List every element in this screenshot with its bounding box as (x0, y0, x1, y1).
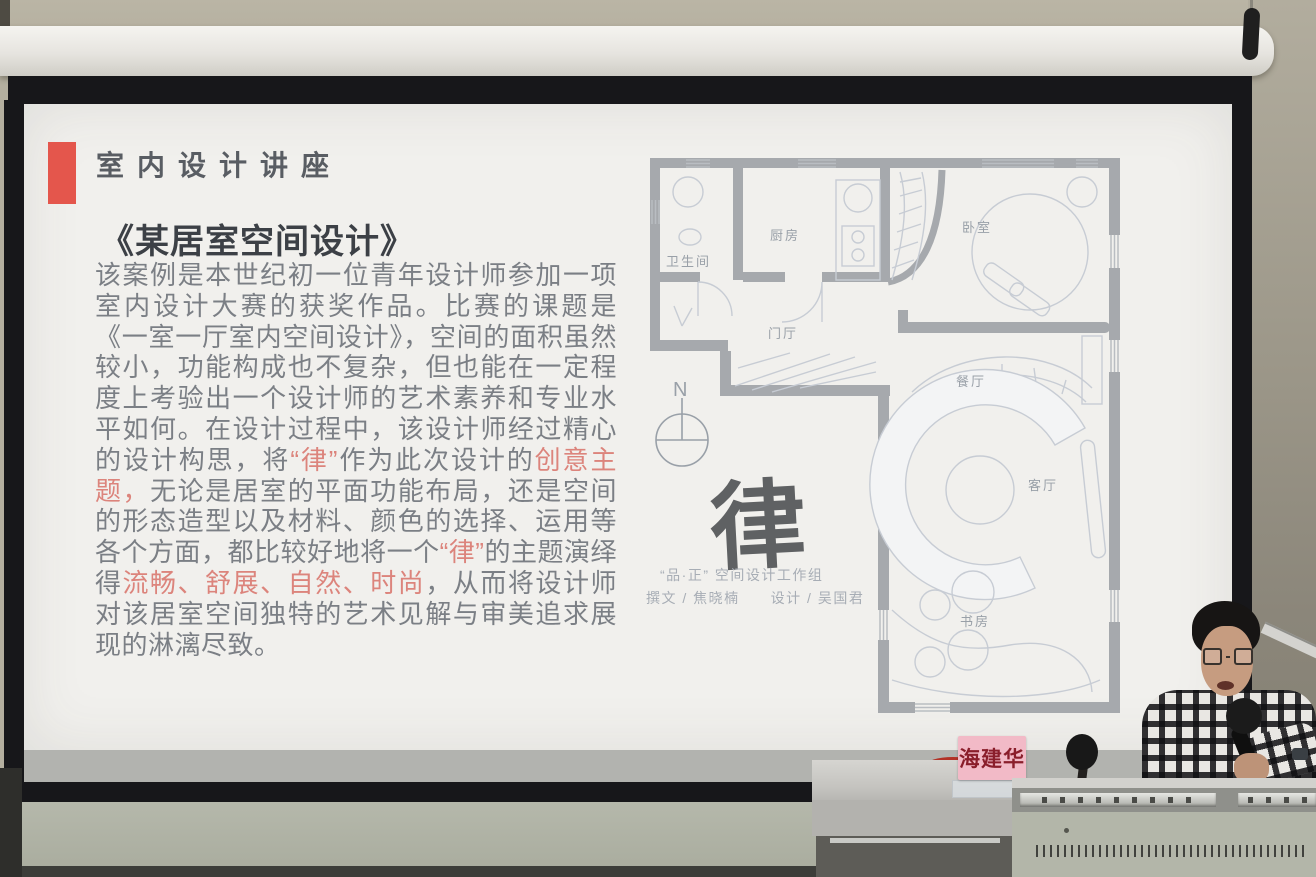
slide-kicker: 室内设计讲座 (96, 144, 342, 184)
slide-body: 该案例是本世纪初一位青年设计师参加一项室内设计大赛的获奖作品。比赛的课题是《一室… (95, 260, 617, 660)
handheld-microphone-icon (1226, 698, 1262, 734)
dark-left-column (0, 768, 22, 877)
lecturer-mouth (1217, 681, 1234, 690)
room-label-foyer: 门厅 (768, 326, 798, 341)
room-label-bathroom: 卫生间 (666, 254, 711, 269)
room-label-living: 客厅 (1028, 478, 1058, 493)
rail-slots-left (1042, 797, 1202, 803)
screen-frame-left (4, 100, 24, 806)
author-credit: 撰文 / 焦晓楠 设计 / 吴国君 (646, 590, 864, 606)
sink-icon (673, 177, 703, 207)
slide: 室内设计讲座 《某居室空间设计》 该案例是本世纪初一位青年设计师参加一项室内设计… (24, 104, 1232, 750)
round-bed-icon (972, 194, 1088, 310)
screen-frame-top (8, 76, 1252, 106)
room-label-bedroom: 卧室 (962, 220, 992, 235)
compass-icon (656, 398, 708, 466)
slide-title: 《某居室空间设计》 (100, 214, 415, 263)
room-label-dining: 餐厅 (956, 374, 986, 389)
desk-microphone-icon (1066, 734, 1098, 770)
room-label-study: 书房 (960, 614, 990, 629)
compass-label: N (673, 379, 689, 401)
desk-top-edge (1012, 778, 1316, 788)
glasses-bridge (1226, 656, 1229, 658)
screen-casing-bar (0, 26, 1274, 76)
glasses-icon (1203, 648, 1253, 665)
room-label-kitchen: 厨房 (770, 228, 800, 243)
screen-pull-handle-icon (1242, 8, 1261, 61)
rail-slots-right (1248, 797, 1308, 803)
panel-screw (1064, 828, 1069, 833)
vent-grille (1036, 845, 1308, 857)
wristwatch-icon (1292, 748, 1308, 760)
studio-credit: “品·正” 空间设计工作组 (660, 567, 823, 583)
drawer-rail-under-shelf (830, 838, 1000, 843)
lecture-hall-photo: 室内设计讲座 《某居室空间设计》 该案例是本世纪初一位青年设计师参加一项室内设计… (0, 0, 1316, 877)
drawer-rails-band (1012, 788, 1316, 812)
name-plate: 海建华 (958, 736, 1026, 780)
glasses-right-lens (1234, 648, 1253, 665)
podium-shelf-front (812, 800, 1014, 836)
glasses-left-lens (1203, 648, 1222, 665)
accent-red-bar (48, 142, 76, 204)
floor-plan: N 卫生间 厨房 卧室 门厅 餐厅 客厅 书房 律 “品·正” 空间设计工作组 … (630, 140, 1160, 740)
toilet-icon (679, 229, 701, 245)
